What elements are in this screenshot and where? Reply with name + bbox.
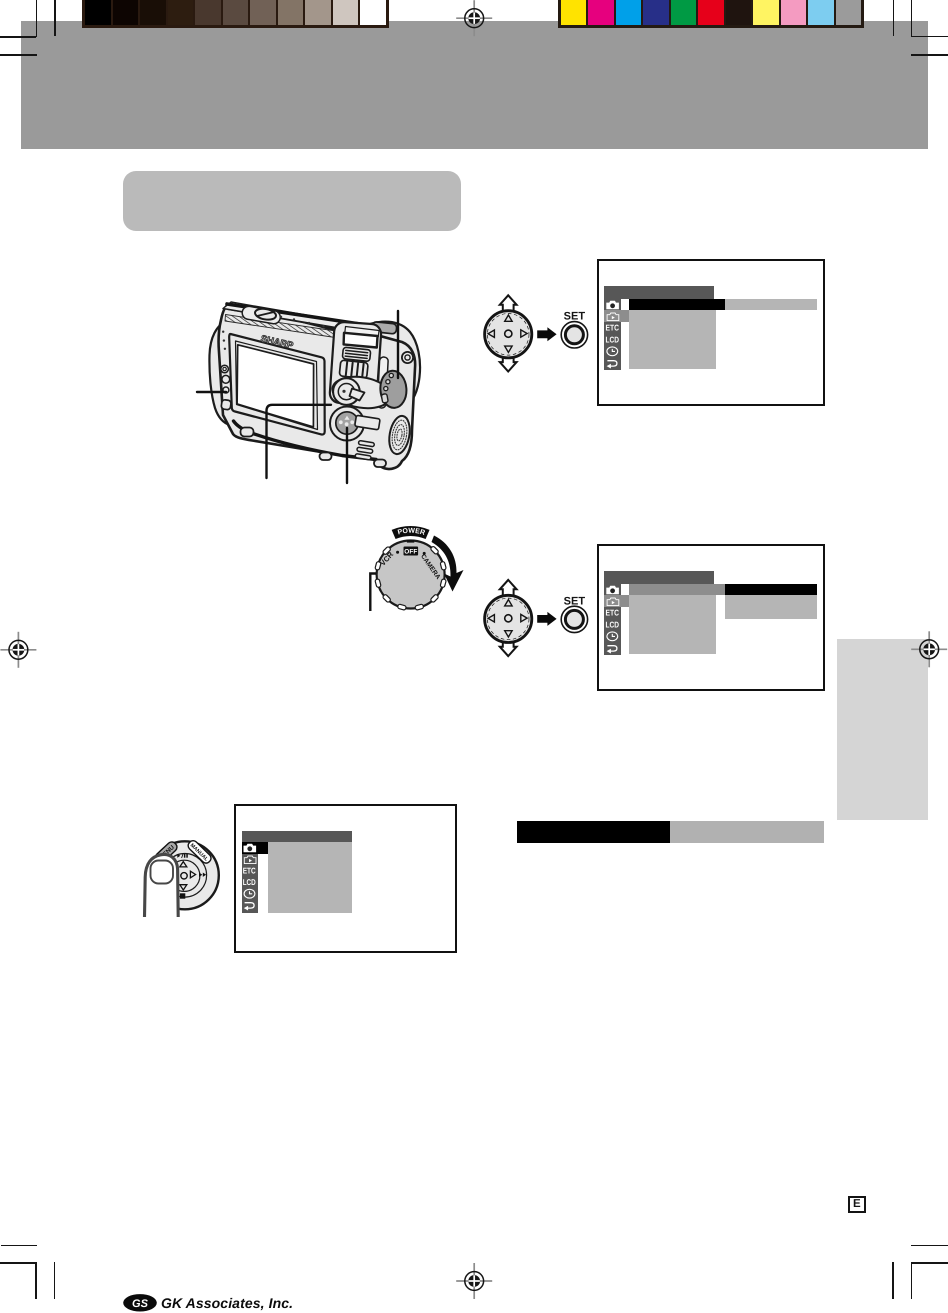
- svg-text:GS: GS: [132, 1298, 149, 1310]
- svg-text:ETC: ETC: [606, 323, 620, 333]
- svg-text:ETC: ETC: [606, 608, 620, 618]
- svg-text:LCD: LCD: [243, 877, 256, 887]
- svg-text:OFF: OFF: [404, 549, 417, 556]
- svg-text:LCD: LCD: [606, 620, 620, 630]
- svg-text:LCD: LCD: [606, 335, 620, 345]
- svg-text:ETC: ETC: [243, 865, 256, 875]
